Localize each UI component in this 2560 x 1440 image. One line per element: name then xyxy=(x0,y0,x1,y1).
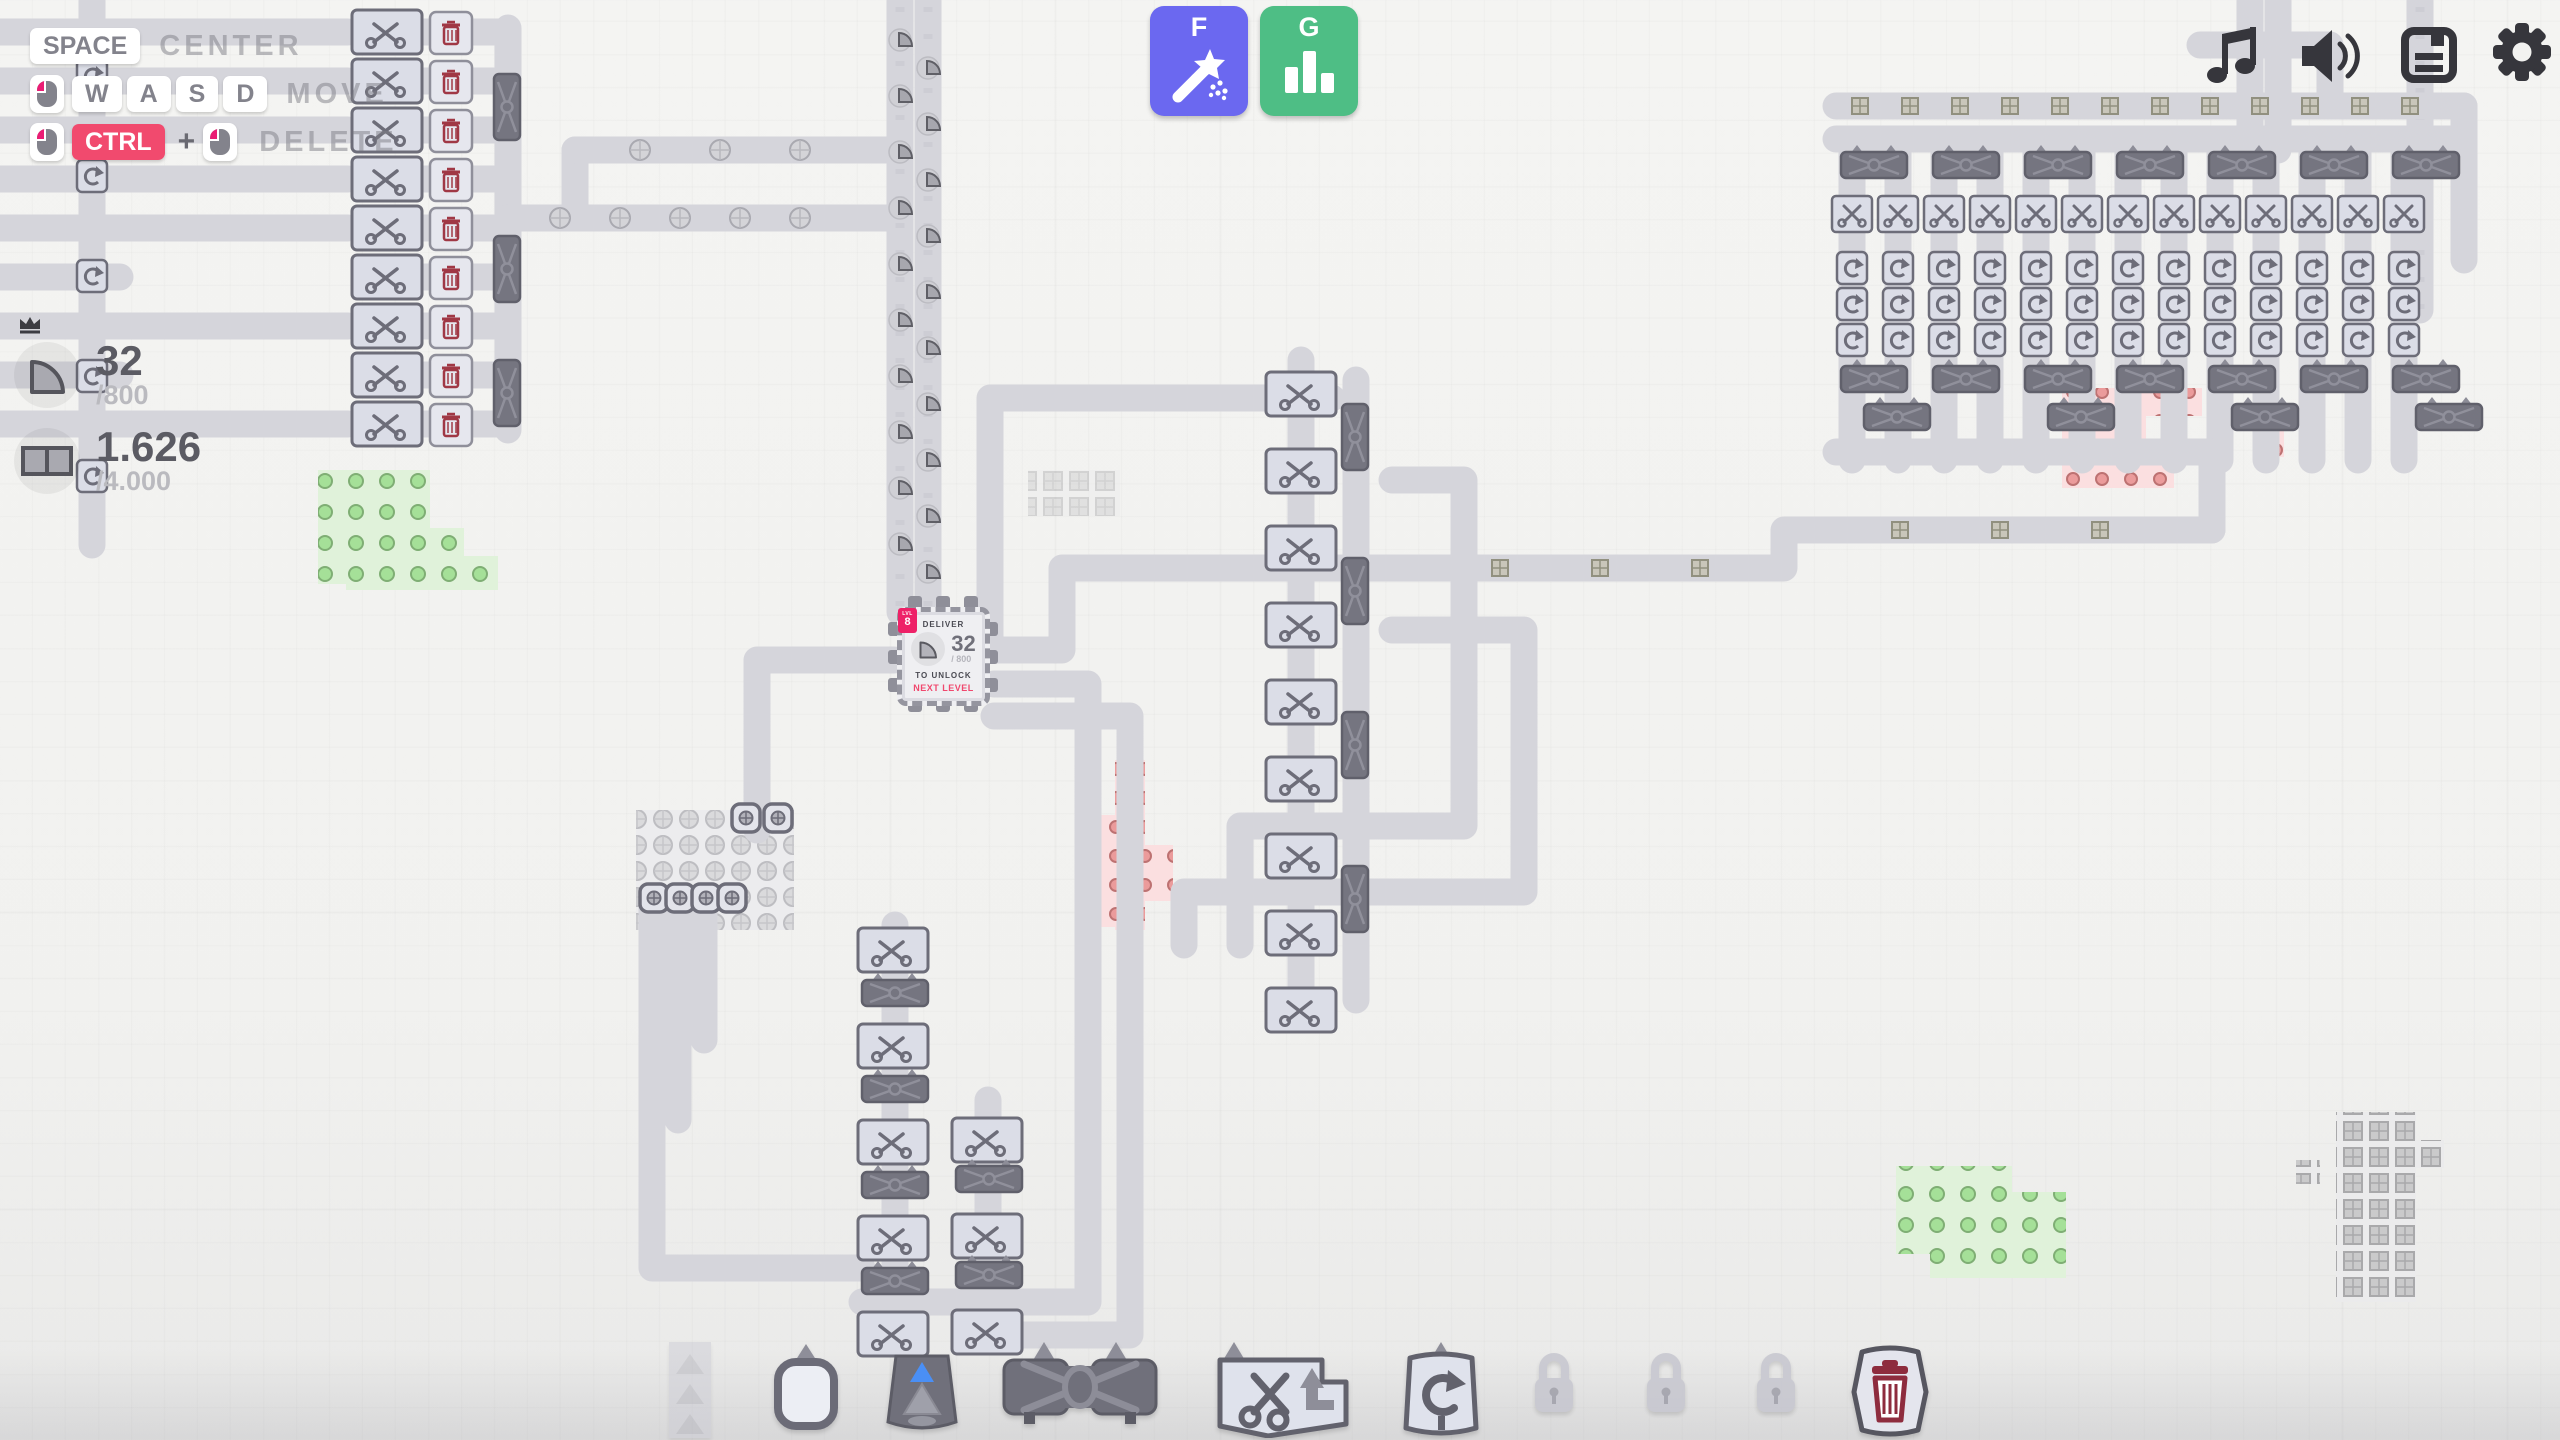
resource-patch-green-left xyxy=(318,470,498,590)
resource-patch-squares-right xyxy=(2296,1112,2444,1302)
pin-goal: /4.000 xyxy=(96,467,201,495)
pin-goal: /800 xyxy=(96,381,149,409)
lock-icon xyxy=(1750,1342,1802,1418)
w-key: W xyxy=(72,76,122,112)
toolbar-tunnel[interactable] xyxy=(884,1342,960,1439)
goal-shape-icon xyxy=(911,632,945,666)
belt-icon xyxy=(655,1342,725,1438)
building-toolbar xyxy=(0,1342,2560,1440)
toolbar-balancer[interactable] xyxy=(1000,1342,1160,1437)
pinned-shapes: 32 /800 1.626 /4.000 xyxy=(14,316,201,513)
tunnel-icon xyxy=(884,1342,960,1434)
game-screen: { "app": { "name": "shapez factory game"… xyxy=(0,0,2560,1440)
quarter-circle-shape-icon xyxy=(14,342,80,408)
hub-deliver-label: DELIVER xyxy=(923,620,965,629)
keybinding-hints: SPACE CENTER W A S D MOVE CTRL + DELETE xyxy=(30,26,398,170)
pin-value: 32 xyxy=(96,341,149,381)
hint-delete: CTRL + DELETE xyxy=(30,122,398,162)
toolbar-belt[interactable] xyxy=(655,1342,725,1440)
hint-center-label: CENTER xyxy=(159,30,302,63)
left-mouse-icon xyxy=(30,123,64,161)
statistics-icon xyxy=(1277,43,1341,105)
cutter-icon xyxy=(1212,1342,1352,1438)
hub-amount: 32 xyxy=(951,634,975,654)
sound-toggle-button[interactable] xyxy=(2298,26,2364,91)
balancer-icon xyxy=(1000,1342,1160,1432)
buildings xyxy=(77,10,2482,1356)
left-mouse-icon xyxy=(30,75,64,113)
toolbar-locked-slot xyxy=(1750,1342,1802,1423)
speaker-icon xyxy=(2298,26,2364,86)
level-badge: LVL 8 xyxy=(898,608,917,633)
toolbar-rotator[interactable] xyxy=(1396,1342,1486,1440)
s-key: S xyxy=(176,76,219,112)
toolbar-trash[interactable] xyxy=(1848,1342,1932,1440)
settings-gear-icon xyxy=(2492,22,2552,82)
magic-wand-icon xyxy=(1166,43,1232,109)
plus-sign: + xyxy=(178,125,196,159)
lock-icon xyxy=(1640,1342,1692,1418)
lock-icon xyxy=(1528,1342,1580,1418)
hotkey-letter: F xyxy=(1150,12,1248,43)
hub-next-level-label: NEXT LEVEL xyxy=(913,683,974,693)
resource-patch-green-bottom xyxy=(1896,1166,2066,1278)
statistics-button[interactable]: G xyxy=(1260,6,1358,116)
settings-button[interactable] xyxy=(2492,22,2552,87)
save-button[interactable] xyxy=(2400,26,2458,89)
hub-unlock-label: TO UNLOCK xyxy=(915,671,971,680)
hud-hotkey-buttons: F G xyxy=(1150,6,1358,116)
music-toggle-button[interactable] xyxy=(2204,22,2266,95)
toolbar-locked-slot xyxy=(1528,1342,1580,1423)
game-canvas[interactable] xyxy=(0,0,2560,1440)
hint-delete-label: DELETE xyxy=(259,126,397,159)
save-icon xyxy=(2400,26,2458,84)
hint-move: W A S D MOVE xyxy=(30,74,398,114)
pinned-goal-current-level[interactable]: 32 /800 xyxy=(14,341,201,409)
item-buffer-patch xyxy=(1028,470,1120,516)
trash-icon xyxy=(1848,1342,1932,1438)
d-key: D xyxy=(223,76,267,112)
extractor-icon xyxy=(770,1342,842,1432)
pin-value: 1.626 xyxy=(96,427,201,467)
hint-move-label: MOVE xyxy=(286,78,387,111)
double-square-shape-icon xyxy=(14,428,80,494)
hub-goal-widget[interactable]: LVL 8 DELIVER 32 / 800 TO UNLOCK NEXT LE… xyxy=(897,607,990,706)
hotkey-letter: G xyxy=(1260,12,1358,43)
space-key: SPACE xyxy=(30,28,140,64)
crown-icon xyxy=(18,316,42,334)
toolbar-cutter[interactable] xyxy=(1212,1342,1352,1440)
rotator-icon xyxy=(1396,1342,1486,1438)
toolbar-extractor[interactable] xyxy=(770,1342,842,1437)
pinned-goal-upgrade[interactable]: 1.626 /4.000 xyxy=(14,427,201,495)
a-key: A xyxy=(127,76,171,112)
blueprint-wand-button[interactable]: F xyxy=(1150,6,1248,116)
ctrl-key: CTRL xyxy=(72,124,165,160)
music-note-icon xyxy=(2204,22,2266,90)
toolbar-locked-slot xyxy=(1640,1342,1692,1423)
hint-center: SPACE CENTER xyxy=(30,26,398,66)
left-mouse-icon xyxy=(203,123,237,161)
